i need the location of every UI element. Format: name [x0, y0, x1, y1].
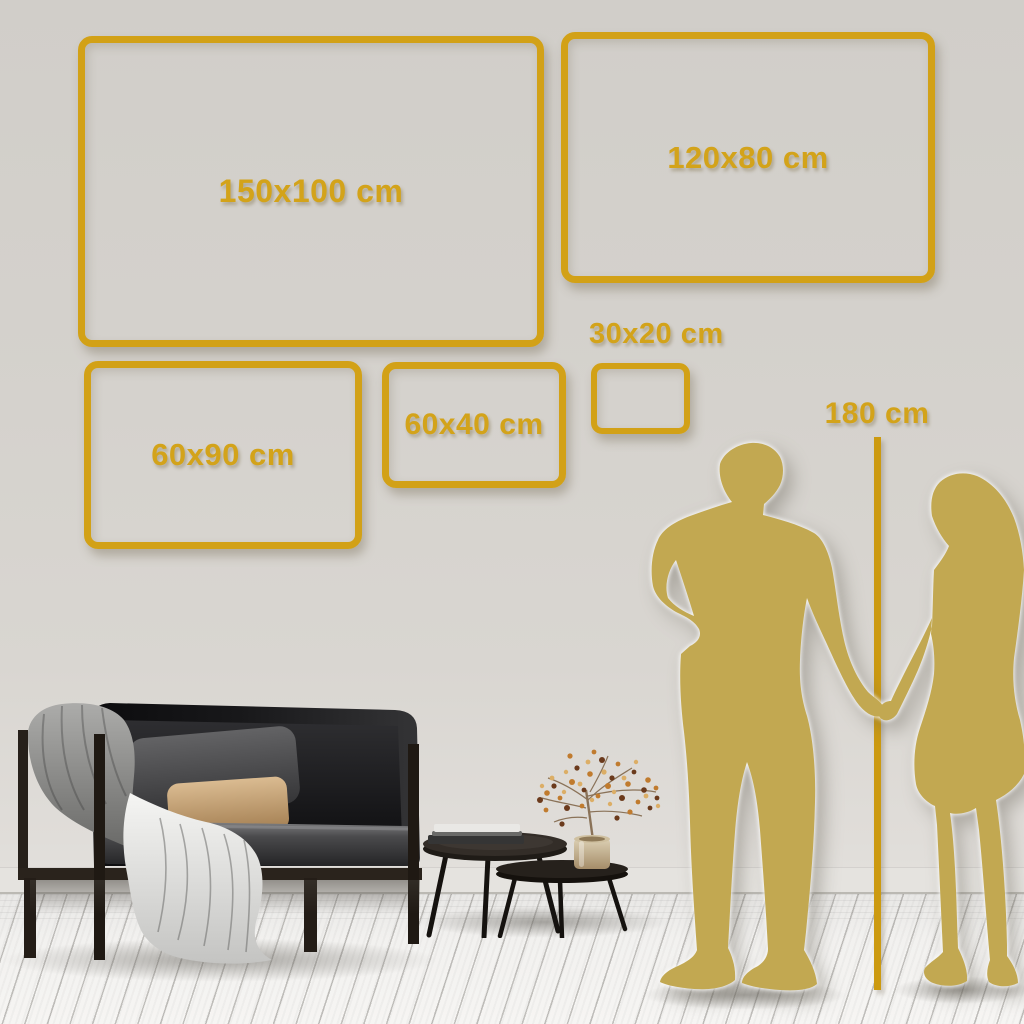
- size-frame-60x40: 60x40 cm: [382, 362, 566, 488]
- size-label-120x80: 120x80 cm: [667, 140, 828, 176]
- couple-silhouette: [650, 440, 1024, 1005]
- man-silhouette: [652, 443, 885, 990]
- books-stack: [428, 824, 524, 844]
- large-table: [423, 832, 567, 937]
- size-label-60x40: 60x40 cm: [404, 408, 543, 442]
- size-label-60x90: 60x90 cm: [151, 437, 295, 473]
- branch-decor: [537, 750, 660, 840]
- sofa-illustration: [10, 688, 435, 973]
- size-frame-150x100: 150x100 cm: [78, 36, 544, 347]
- size-label-150x100: 150x100 cm: [219, 173, 404, 210]
- vase: [574, 835, 610, 869]
- size-label-30x20: 30x20 cm: [589, 318, 724, 351]
- small-table: [496, 860, 628, 938]
- woman-silhouette: [879, 473, 1024, 986]
- coffee-tables-illustration: [412, 738, 677, 938]
- size-frame-60x90: 60x90 cm: [84, 361, 362, 549]
- blanket: [28, 703, 136, 848]
- size-frame-120x80: 120x80 cm: [561, 32, 935, 283]
- size-frame-30x20: [591, 363, 690, 434]
- wall-art-size-guide-scene: 150x100 cm 120x80 cm 60x90 cm 60x40 cm 3…: [0, 0, 1024, 1024]
- height-reference-label: 180 cm: [798, 397, 956, 431]
